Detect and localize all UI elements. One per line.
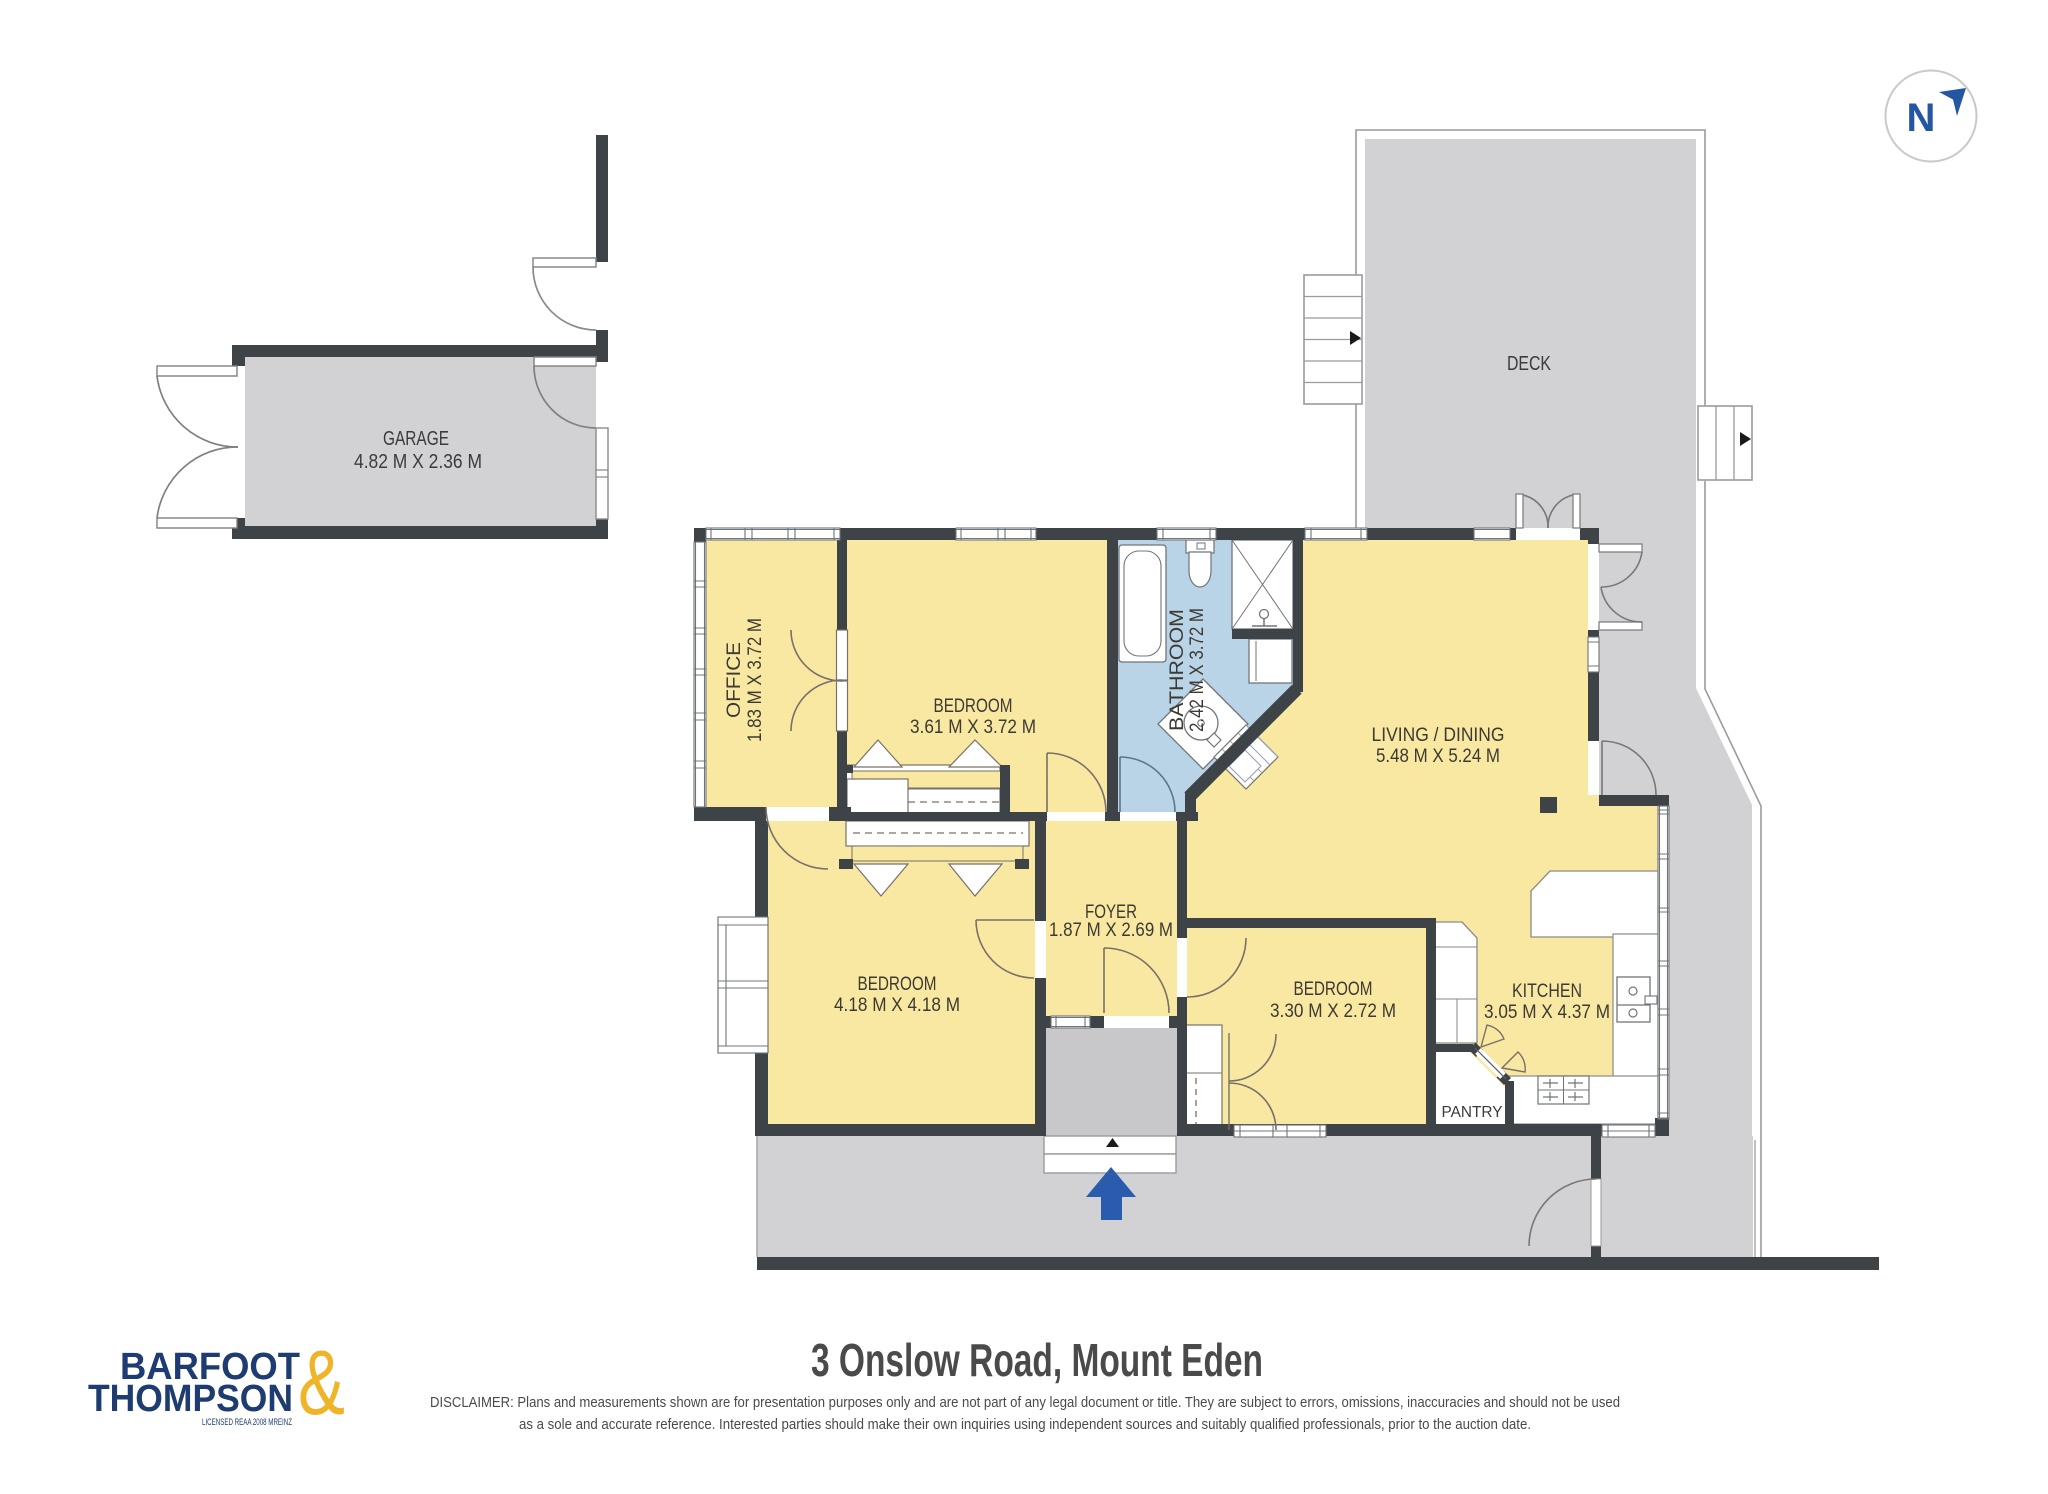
svg-text:LICENSED REAA 2008 MREINZ: LICENSED REAA 2008 MREINZ	[202, 1417, 292, 1427]
svg-text:DECK: DECK	[1507, 353, 1552, 375]
svg-text:OFFICE: OFFICE	[724, 642, 745, 718]
svg-text:3.05 M X 4.37 M: 3.05 M X 4.37 M	[1484, 1002, 1610, 1023]
svg-text:4.18 M X 4.18 M: 4.18 M X 4.18 M	[834, 995, 960, 1016]
svg-text:3.61 M X 3.72 M: 3.61 M X 3.72 M	[910, 717, 1036, 738]
svg-text:3 Onslow Road, Mount Eden: 3 Onslow Road, Mount Eden	[811, 1334, 1263, 1386]
svg-text:2.42 M X 3.72 M: 2.42 M X 3.72 M	[1187, 608, 1208, 732]
svg-text:DISCLAIMER: Plans and measurem: DISCLAIMER: Plans and measurements shown…	[430, 1395, 1620, 1411]
svg-text:1.83 M X 3.72 M: 1.83 M X 3.72 M	[745, 618, 766, 742]
svg-text:4.82 M X 2.36 M: 4.82 M X 2.36 M	[354, 451, 482, 473]
svg-text:GARAGE: GARAGE	[383, 428, 449, 450]
svg-text:as a sole and accurate referen: as a sole and accurate reference. Intere…	[519, 1417, 1531, 1433]
svg-text:N: N	[1907, 96, 1936, 140]
svg-text:THOMPSON: THOMPSON	[88, 1378, 293, 1420]
svg-text:BEDROOM: BEDROOM	[1294, 979, 1373, 1000]
svg-text:LIVING / DINING: LIVING / DINING	[1372, 725, 1505, 746]
svg-text:BEDROOM: BEDROOM	[858, 974, 937, 995]
svg-text:BATHROOM: BATHROOM	[1167, 609, 1188, 731]
svg-text:&: &	[298, 1332, 345, 1434]
svg-text:3.30 M X 2.72 M: 3.30 M X 2.72 M	[1270, 1001, 1396, 1022]
svg-text:5.48 M X 5.24 M: 5.48 M X 5.24 M	[1376, 746, 1500, 767]
svg-text:BEDROOM: BEDROOM	[934, 696, 1013, 717]
svg-text:PANTRY: PANTRY	[1442, 1104, 1503, 1121]
svg-text:1.87 M X 2.69 M: 1.87 M X 2.69 M	[1049, 920, 1173, 941]
svg-text:KITCHEN: KITCHEN	[1512, 981, 1582, 1002]
